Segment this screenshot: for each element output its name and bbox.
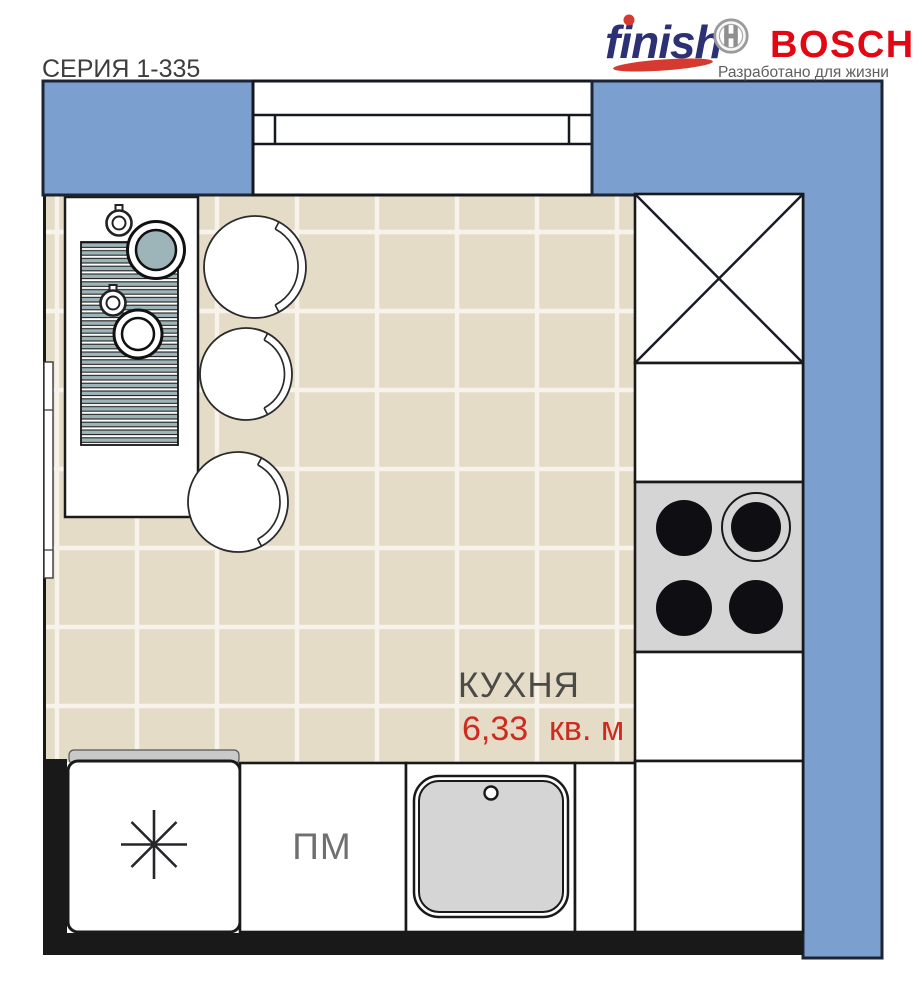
finish-logo: finish: [605, 15, 722, 74]
series-title: СЕРИЯ 1-335: [42, 55, 200, 83]
kitchen-plan-page: ПМ КУХНЯ 6,33 кв. м СЕРИЯ 1-335 finish B…: [0, 0, 923, 1000]
bosch-logo-text: BOSCH: [770, 24, 915, 66]
dishwasher: ПМ: [240, 763, 406, 932]
room-area-unit: кв. м: [549, 710, 624, 748]
kitchen-floor-plan: ПМ КУХНЯ 6,33 кв. м СЕРИЯ 1-335 finish B…: [0, 0, 923, 1000]
sink-cabinet: [406, 763, 575, 932]
plate-icon: [128, 222, 185, 279]
room-name-label: КУХНЯ: [458, 666, 580, 705]
room-area-value: 6,33: [462, 710, 528, 748]
dining-table: [65, 197, 198, 517]
bosch-tagline: Разработано для жизни: [718, 64, 889, 81]
left-wall-radiator: [44, 362, 53, 578]
hob: [635, 482, 803, 652]
wall-top-left: [43, 81, 253, 195]
fridge: [68, 750, 240, 932]
corner-counter: [575, 763, 635, 932]
cabinet: [635, 761, 803, 932]
plate-icon: [114, 310, 162, 358]
finish-i-dot: [624, 15, 635, 26]
sink: [414, 776, 568, 917]
dishwasher-label: ПМ: [292, 826, 351, 867]
sink-drain-icon: [485, 787, 498, 800]
burner: [656, 500, 712, 556]
burner: [729, 580, 783, 634]
vent-shaft: [635, 194, 803, 363]
bosch-emblem-icon: [715, 20, 747, 52]
cabinet: [635, 652, 803, 761]
burner: [731, 502, 781, 552]
window: [253, 81, 592, 195]
chair: [188, 452, 288, 552]
burner: [656, 580, 712, 636]
chair: [200, 328, 292, 420]
chair: [204, 216, 306, 318]
cabinet: [635, 363, 803, 482]
